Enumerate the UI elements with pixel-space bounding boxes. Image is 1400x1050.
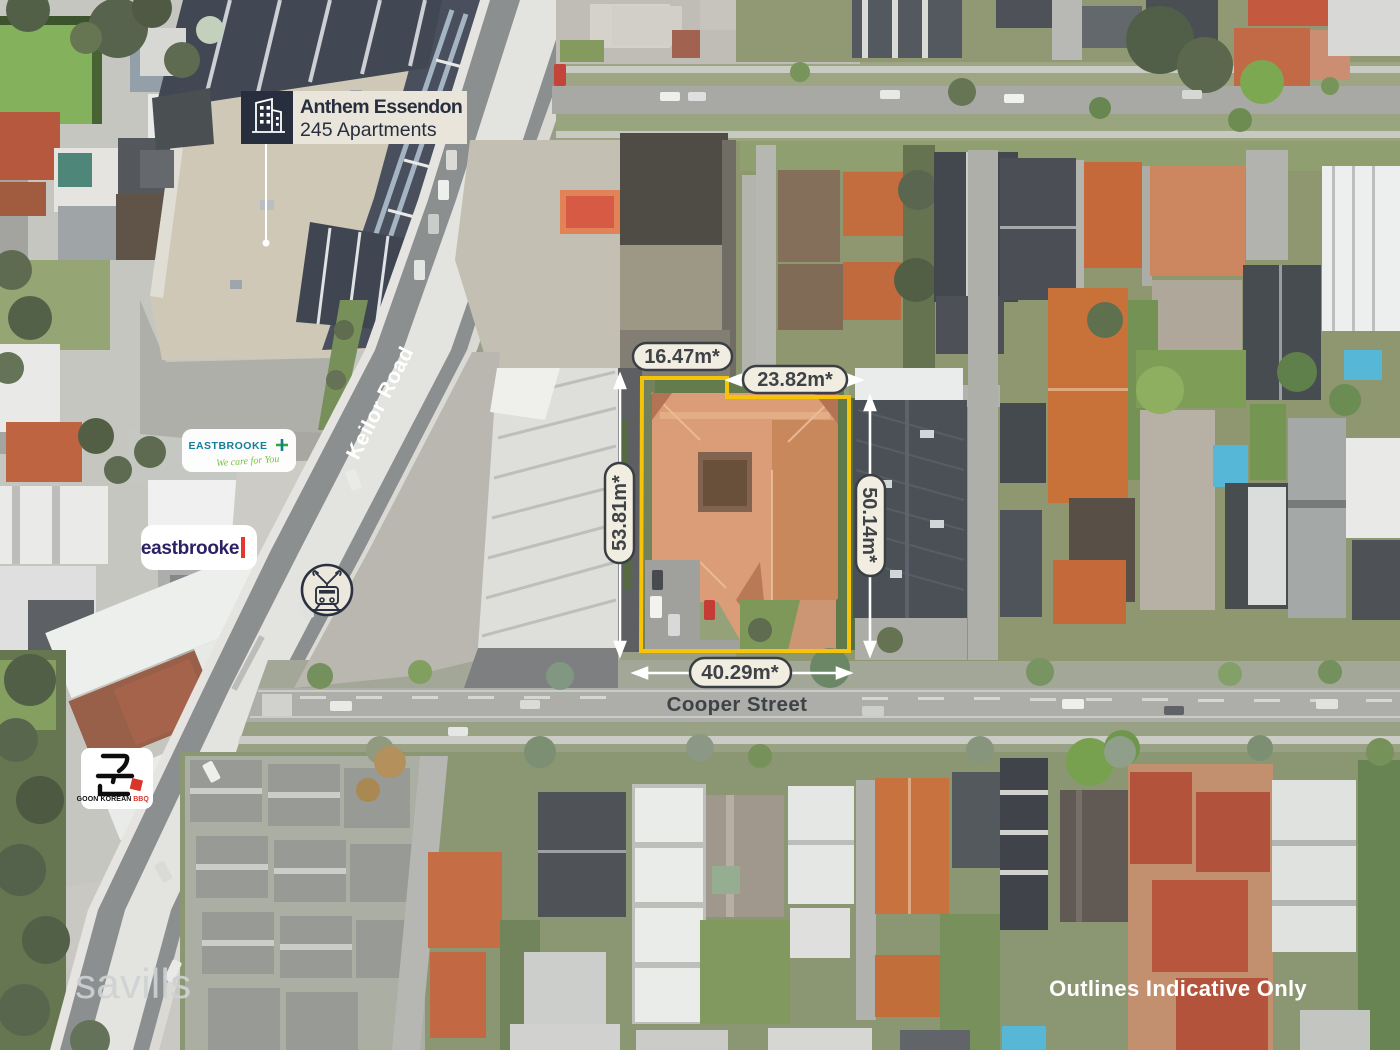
svg-text:Anthem Essendon: Anthem Essendon <box>300 96 462 118</box>
svg-text:50.14m*: 50.14m* <box>858 487 880 563</box>
svg-text:EASTBROOKE: EASTBROOKE <box>188 440 267 452</box>
svg-text:BBQ: BBQ <box>133 796 149 803</box>
svg-text:40.29m*: 40.29m* <box>701 661 779 684</box>
svg-text:245 Apartments: 245 Apartments <box>300 119 437 141</box>
svg-text:16.47m*: 16.47m* <box>644 346 720 368</box>
svg-text:Outlines Indicative Only: Outlines Indicative Only <box>1049 976 1307 1001</box>
svg-text:23.82m*: 23.82m* <box>757 369 833 391</box>
svg-text:Cooper Street: Cooper Street <box>667 693 808 716</box>
svg-text:53.81m*: 53.81m* <box>609 475 631 551</box>
svg-text:eastbrooke: eastbrooke <box>141 538 239 559</box>
svg-text:savills: savills <box>75 960 191 1007</box>
svg-text:GOON KOREAN: GOON KOREAN <box>77 796 132 803</box>
